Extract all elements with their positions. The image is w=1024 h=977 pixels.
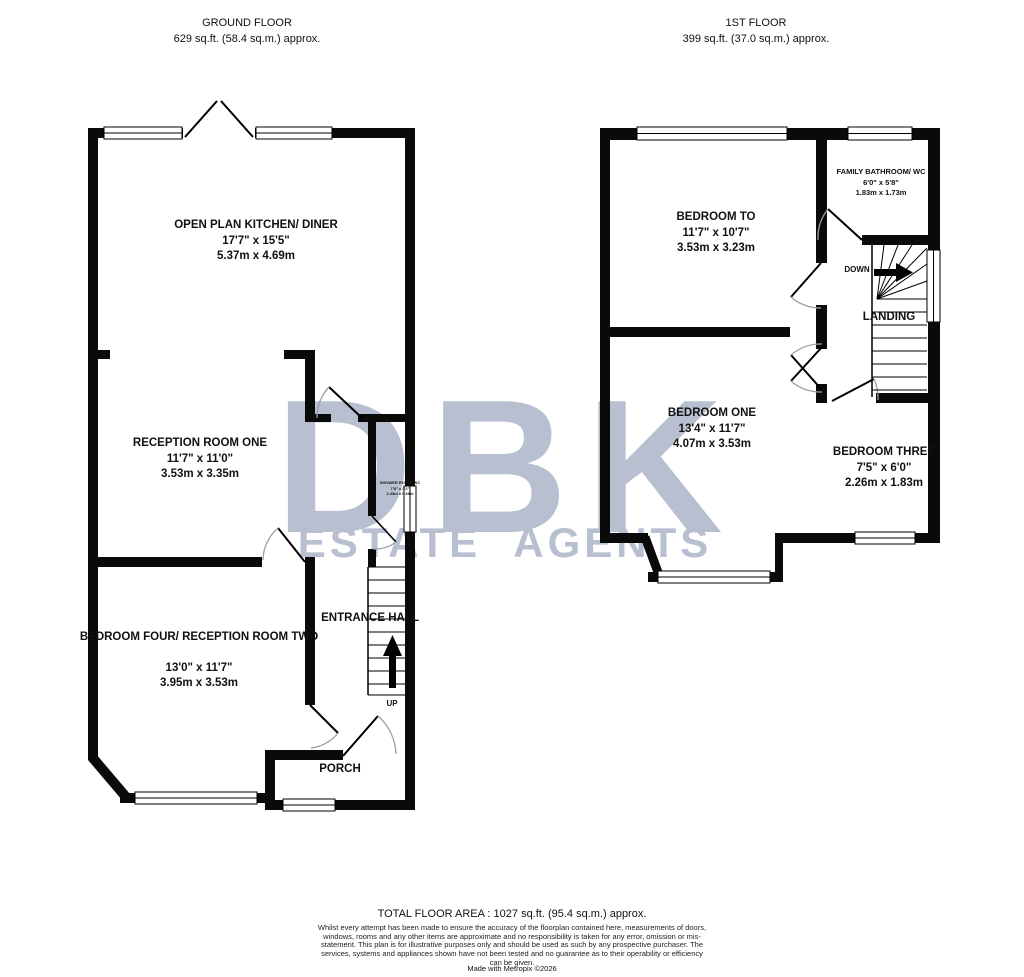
wall [876, 393, 928, 403]
wall [265, 750, 343, 760]
room-label-bedroom-four-imperial: 13'0" x 11'7" [166, 662, 233, 675]
room-label-bedroom-four-name: BEDROOM FOUR/ RECEPTION ROOM TWO [74, 630, 324, 645]
room-label-kitchen-name: OPEN PLAN KITCHEN/ DINER [174, 219, 338, 232]
room-label-bathroom-name: FAMILY BATHROOM/ WC [836, 167, 925, 176]
wall [88, 557, 262, 567]
room-label-kitchen-metric: 5.37m x 4.69m [217, 250, 295, 263]
ground-floor-plan [88, 101, 416, 811]
room-label-reception-one-imperial: 11'7" x 11'0" [167, 453, 233, 466]
wall [775, 533, 827, 543]
room-label-bedroom-two-imperial: 11'7" x 10'7" [683, 227, 750, 240]
wall [600, 533, 648, 543]
wall-bay-diagonal [645, 537, 659, 575]
wall [928, 128, 940, 543]
room-label-landing: LANDING [863, 311, 915, 324]
wall [405, 128, 415, 810]
room-label-bathroom-imperial: 6'0" x 5'8" [863, 178, 899, 187]
wall [816, 138, 827, 263]
wall [816, 327, 827, 349]
room-label-reception-one-name: RECEPTION ROOM ONE [133, 437, 267, 450]
wall [862, 235, 940, 245]
wall [88, 350, 110, 359]
wall [368, 414, 376, 516]
floorplan-page: DBK ESTATE AGENTS [0, 0, 1024, 977]
wall [88, 128, 98, 760]
wall [368, 549, 376, 567]
stairs-down-label: DOWN [844, 265, 869, 274]
wall [305, 414, 331, 422]
room-label-bedroom-one-metric: 4.07m x 3.53m [673, 438, 751, 451]
ground-floor-area: 629 sq.ft. (58.4 sq.m.) approx. [174, 33, 321, 46]
room-label-shower-metric: 2.33m x 0.66m [386, 491, 413, 496]
room-label-reception-one-metric: 3.53m x 3.35m [161, 468, 239, 481]
doors [263, 387, 396, 756]
first-floor-title: 1ST FLOOR [726, 17, 787, 30]
wall [305, 350, 315, 422]
room-label-bathroom-metric: 1.83m x 1.73m [856, 188, 907, 197]
wall [358, 414, 405, 422]
room-label-porch: PORCH [319, 763, 361, 776]
room-label-shower-name: SHOWER ROOM/ WC [380, 480, 420, 485]
room-label-bedroom-two-metric: 3.53m x 3.23m [677, 242, 755, 255]
patio-door-opening [183, 127, 255, 139]
room-label-bedroom-one-name: BEDROOM ONE [668, 407, 756, 420]
total-floor-area: TOTAL FLOOR AREA : 1027 sq.ft. (95.4 sq.… [378, 908, 647, 921]
stairs-up [368, 567, 405, 695]
wall-bay-diagonal [92, 757, 126, 797]
room-label-bedroom-three-metric: 2.26m x 1.83m [845, 477, 923, 490]
metropix-credit: Made with Metropix ©2026 [467, 962, 556, 975]
disclaimer-text: Whilst every attempt has been made to en… [317, 924, 707, 968]
stairs-up-label: UP [386, 699, 397, 708]
room-label-entrance-hall: ENTRANCE HALL [321, 612, 419, 625]
wall [816, 384, 827, 403]
room-label-kitchen-imperial: 17'7" x 15'5" [222, 235, 290, 248]
room-label-bedroom-two-name: BEDROOM TO [676, 211, 755, 224]
room-label-bedroom-three-imperial: 7'5" x 6'0" [857, 462, 912, 475]
wall [600, 327, 790, 337]
first-floor-area: 399 sq.ft. (37.0 sq.m.) approx. [683, 33, 830, 46]
room-label-bedroom-three-name: BEDROOM THREE [833, 446, 935, 459]
room-label-bedroom-four-metric: 3.95m x 3.53m [160, 677, 238, 690]
room-label-bedroom-one-imperial: 13'4" x 11'7" [679, 423, 746, 436]
ground-floor-title: GROUND FLOOR [202, 17, 292, 30]
up-arrow [383, 635, 402, 688]
